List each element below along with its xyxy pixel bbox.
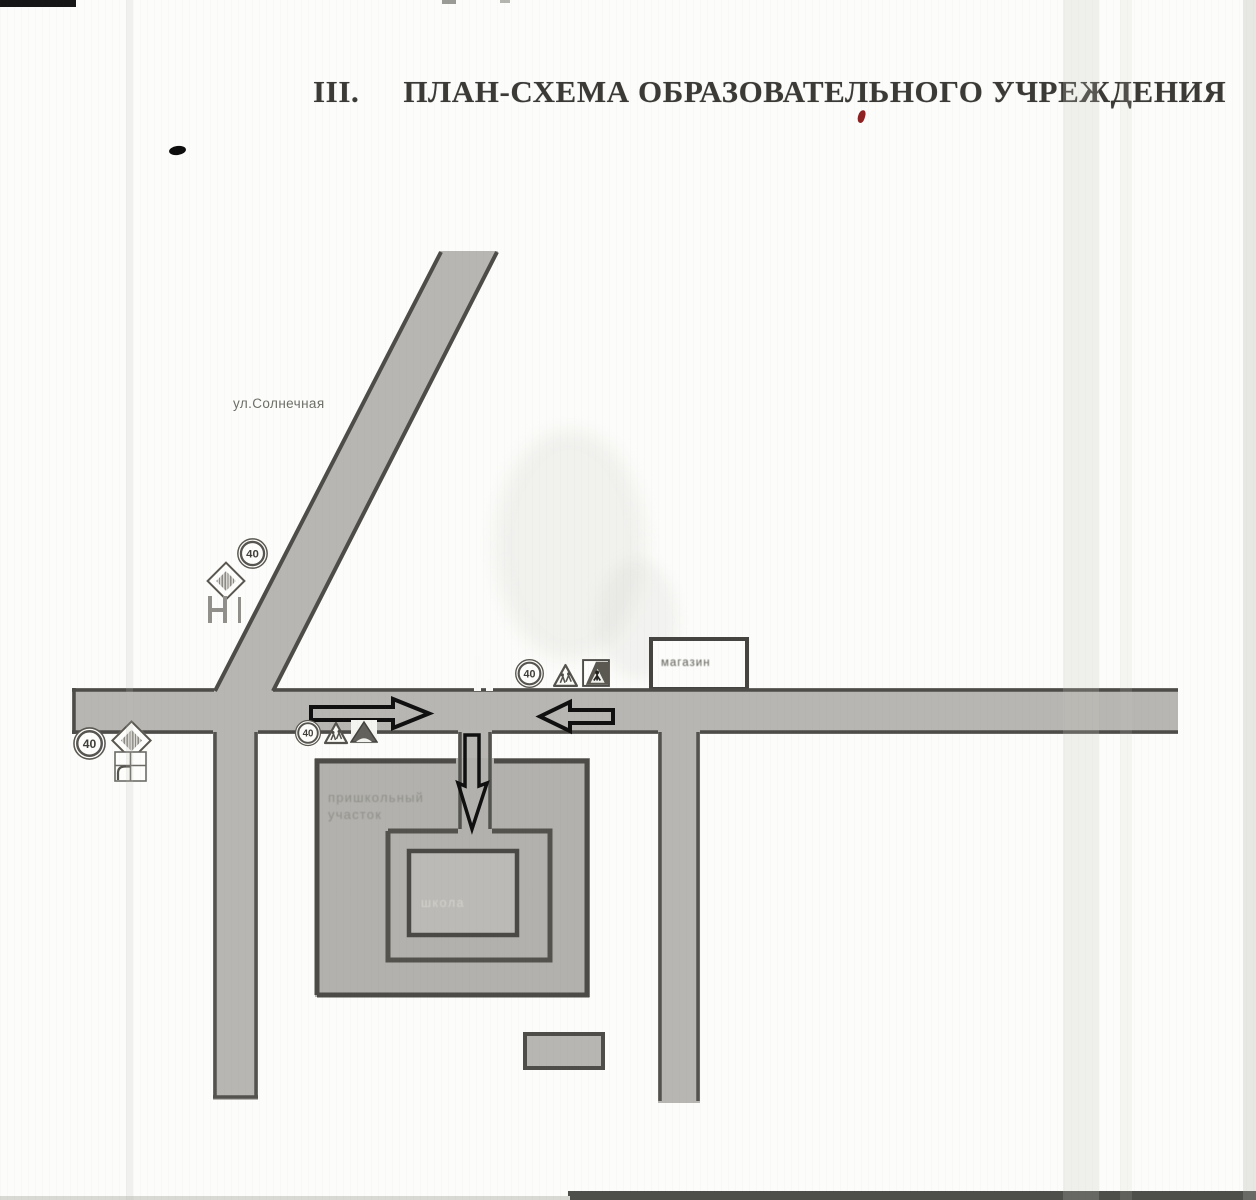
school-label: школа (421, 896, 465, 910)
page-title: III.ПЛАН-СХЕМА ОБРАЗОВАТЕЛЬНОГО УЧРЕЖДЕН… (313, 74, 1253, 110)
road-vertical-right (658, 730, 700, 1103)
speed-limit-sign: 40 (294, 719, 322, 747)
grounds-label-line2: участок (328, 806, 424, 823)
speed-limit-sign: 40 (236, 537, 269, 570)
bus-stop-symbol (208, 596, 248, 624)
children-warning-sign (552, 663, 579, 688)
h-bar (238, 597, 241, 623)
speed-limit-value: 40 (524, 668, 536, 680)
speed-limit-sign: 40 (72, 726, 107, 761)
page-title-text: ПЛАН-СХЕМА ОБРАЗОВАТЕЛЬНОГО УЧРЕЖДЕНИЯ (403, 74, 1226, 109)
diamond-hatch (121, 730, 142, 751)
grounds-label: пришкольный участок (328, 789, 424, 823)
scanned-page: { "page": { "section_number": "III.", "t… (0, 0, 1256, 1200)
road-diagonal (214, 251, 498, 692)
road-horizontal (72, 688, 1178, 734)
scan-white-mark (486, 679, 493, 691)
road-vertical-left (213, 730, 258, 1100)
speed-limit-value: 40 (83, 737, 97, 751)
h-bar (211, 608, 224, 612)
speed-limit-value: 40 (303, 729, 314, 740)
speed-limit-sign: 40 (514, 658, 545, 689)
road-hump-sign (350, 719, 378, 745)
street-label: ул.Солнечная (233, 396, 325, 411)
shop-label: магазин (661, 657, 711, 669)
utility-grid-symbol (114, 751, 147, 782)
diamond-hatch (216, 571, 236, 591)
outbuilding (525, 1034, 603, 1068)
grounds-label-line1: пришкольный (328, 789, 424, 806)
pedestrian-crossing-sign (582, 659, 610, 687)
speed-limit-value: 40 (246, 549, 259, 561)
map-svg (0, 0, 1256, 1200)
scan-white-mark (474, 656, 481, 691)
section-number: III. (313, 74, 359, 109)
children-warning-sign (323, 721, 349, 745)
school-building (409, 851, 517, 935)
